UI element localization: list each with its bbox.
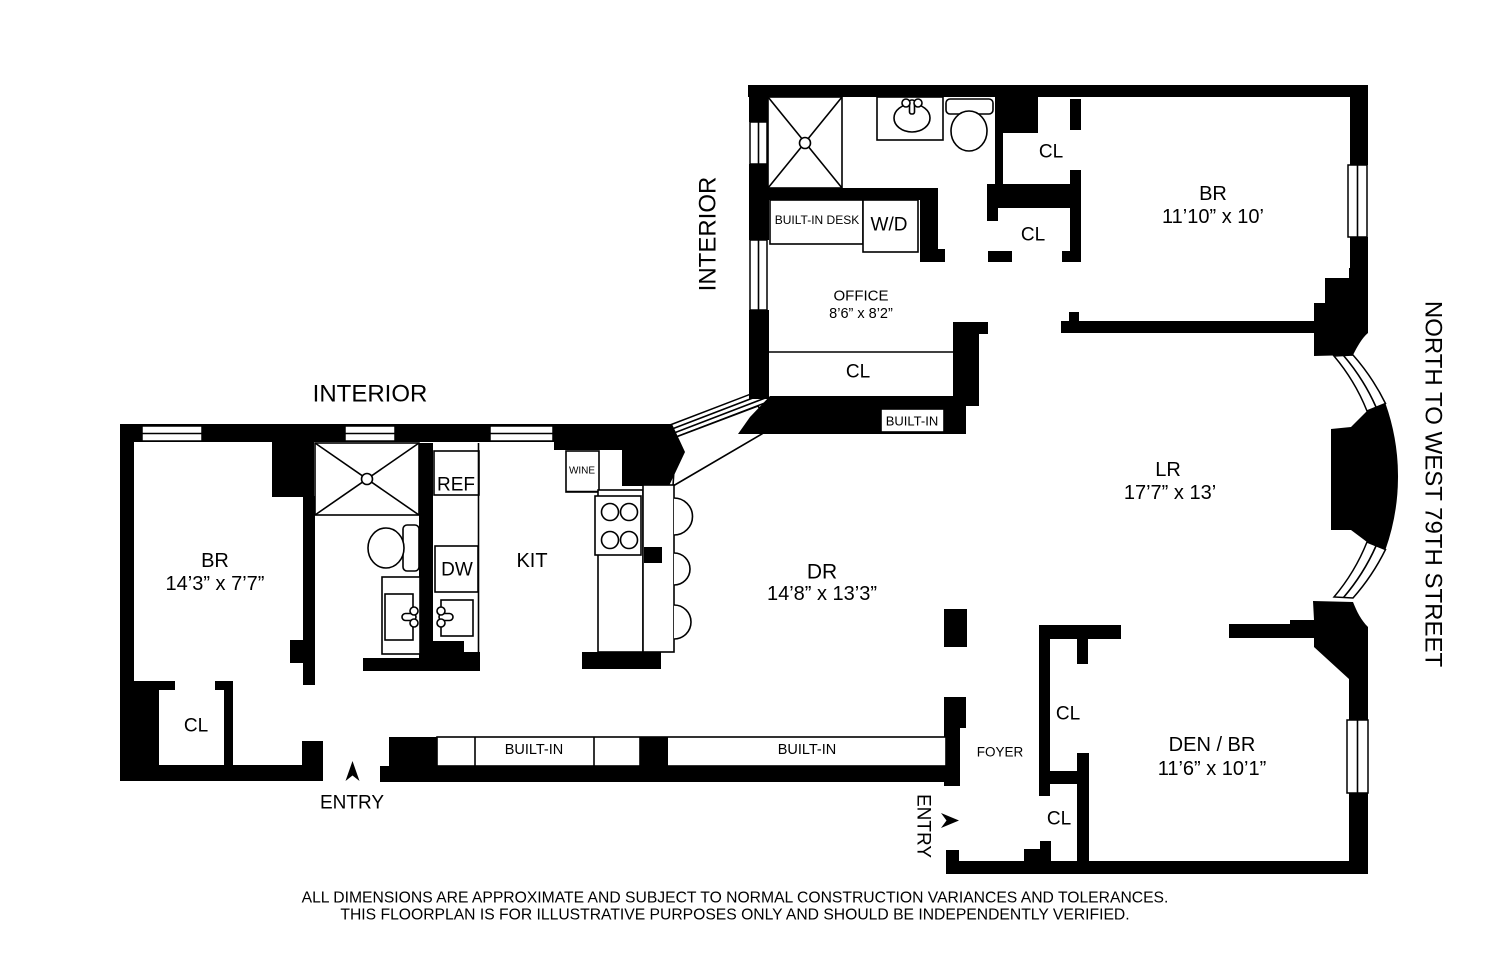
- svg-text:11’6” x 10’1”: 11’6” x 10’1”: [1158, 758, 1267, 780]
- svg-text:LR: LR: [1155, 459, 1181, 481]
- svg-text:11’10” x 10’: 11’10” x 10’: [1162, 206, 1264, 228]
- svg-text:ALL DIMENSIONS ARE APPROXIMATE: ALL DIMENSIONS ARE APPROXIMATE AND SUBJE…: [302, 890, 1169, 907]
- svg-text:8’6” x 8’2”: 8’6” x 8’2”: [829, 306, 893, 322]
- svg-text:W/D: W/D: [871, 215, 908, 236]
- svg-text:CL: CL: [846, 362, 870, 383]
- svg-text:CL: CL: [1021, 225, 1045, 246]
- svg-text:INTERIOR: INTERIOR: [695, 177, 722, 292]
- svg-text:NORTH TO WEST 79TH STREET: NORTH TO WEST 79TH STREET: [1420, 301, 1447, 668]
- svg-text:BUILT-IN: BUILT-IN: [505, 742, 564, 758]
- svg-text:CL: CL: [1047, 809, 1071, 830]
- svg-text:DW: DW: [441, 560, 473, 581]
- svg-text:14’3” x 7’7”: 14’3” x 7’7”: [166, 573, 265, 595]
- svg-text:BR: BR: [201, 550, 229, 572]
- svg-text:CL: CL: [184, 716, 208, 737]
- svg-text:THIS FLOORPLAN IS FOR ILLUSTRA: THIS FLOORPLAN IS FOR ILLUSTRATIVE PURPO…: [340, 907, 1129, 924]
- svg-text:BR: BR: [1199, 183, 1227, 205]
- svg-text:BUILT-IN: BUILT-IN: [886, 414, 939, 429]
- svg-text:INTERIOR: INTERIOR: [313, 381, 428, 408]
- svg-text:14’8” x 13’3”: 14’8” x 13’3”: [767, 583, 877, 605]
- svg-text:WINE: WINE: [569, 466, 595, 477]
- svg-text:BUILT-IN DESK: BUILT-IN DESK: [775, 213, 859, 227]
- svg-text:ENTRY: ENTRY: [320, 793, 384, 814]
- svg-text:BUILT-IN: BUILT-IN: [778, 742, 837, 758]
- svg-text:CL: CL: [1056, 704, 1080, 725]
- svg-text:OFFICE: OFFICE: [834, 288, 889, 305]
- svg-text:DEN / BR: DEN / BR: [1169, 734, 1256, 756]
- svg-text:DR: DR: [807, 561, 837, 584]
- svg-text:FOYER: FOYER: [977, 745, 1024, 760]
- svg-text:REF: REF: [437, 475, 475, 496]
- svg-text:CL: CL: [1039, 142, 1063, 163]
- svg-text:ENTRY: ENTRY: [913, 794, 934, 858]
- svg-text:17’7” x 13’: 17’7” x 13’: [1124, 482, 1216, 504]
- svg-text:KIT: KIT: [516, 550, 547, 572]
